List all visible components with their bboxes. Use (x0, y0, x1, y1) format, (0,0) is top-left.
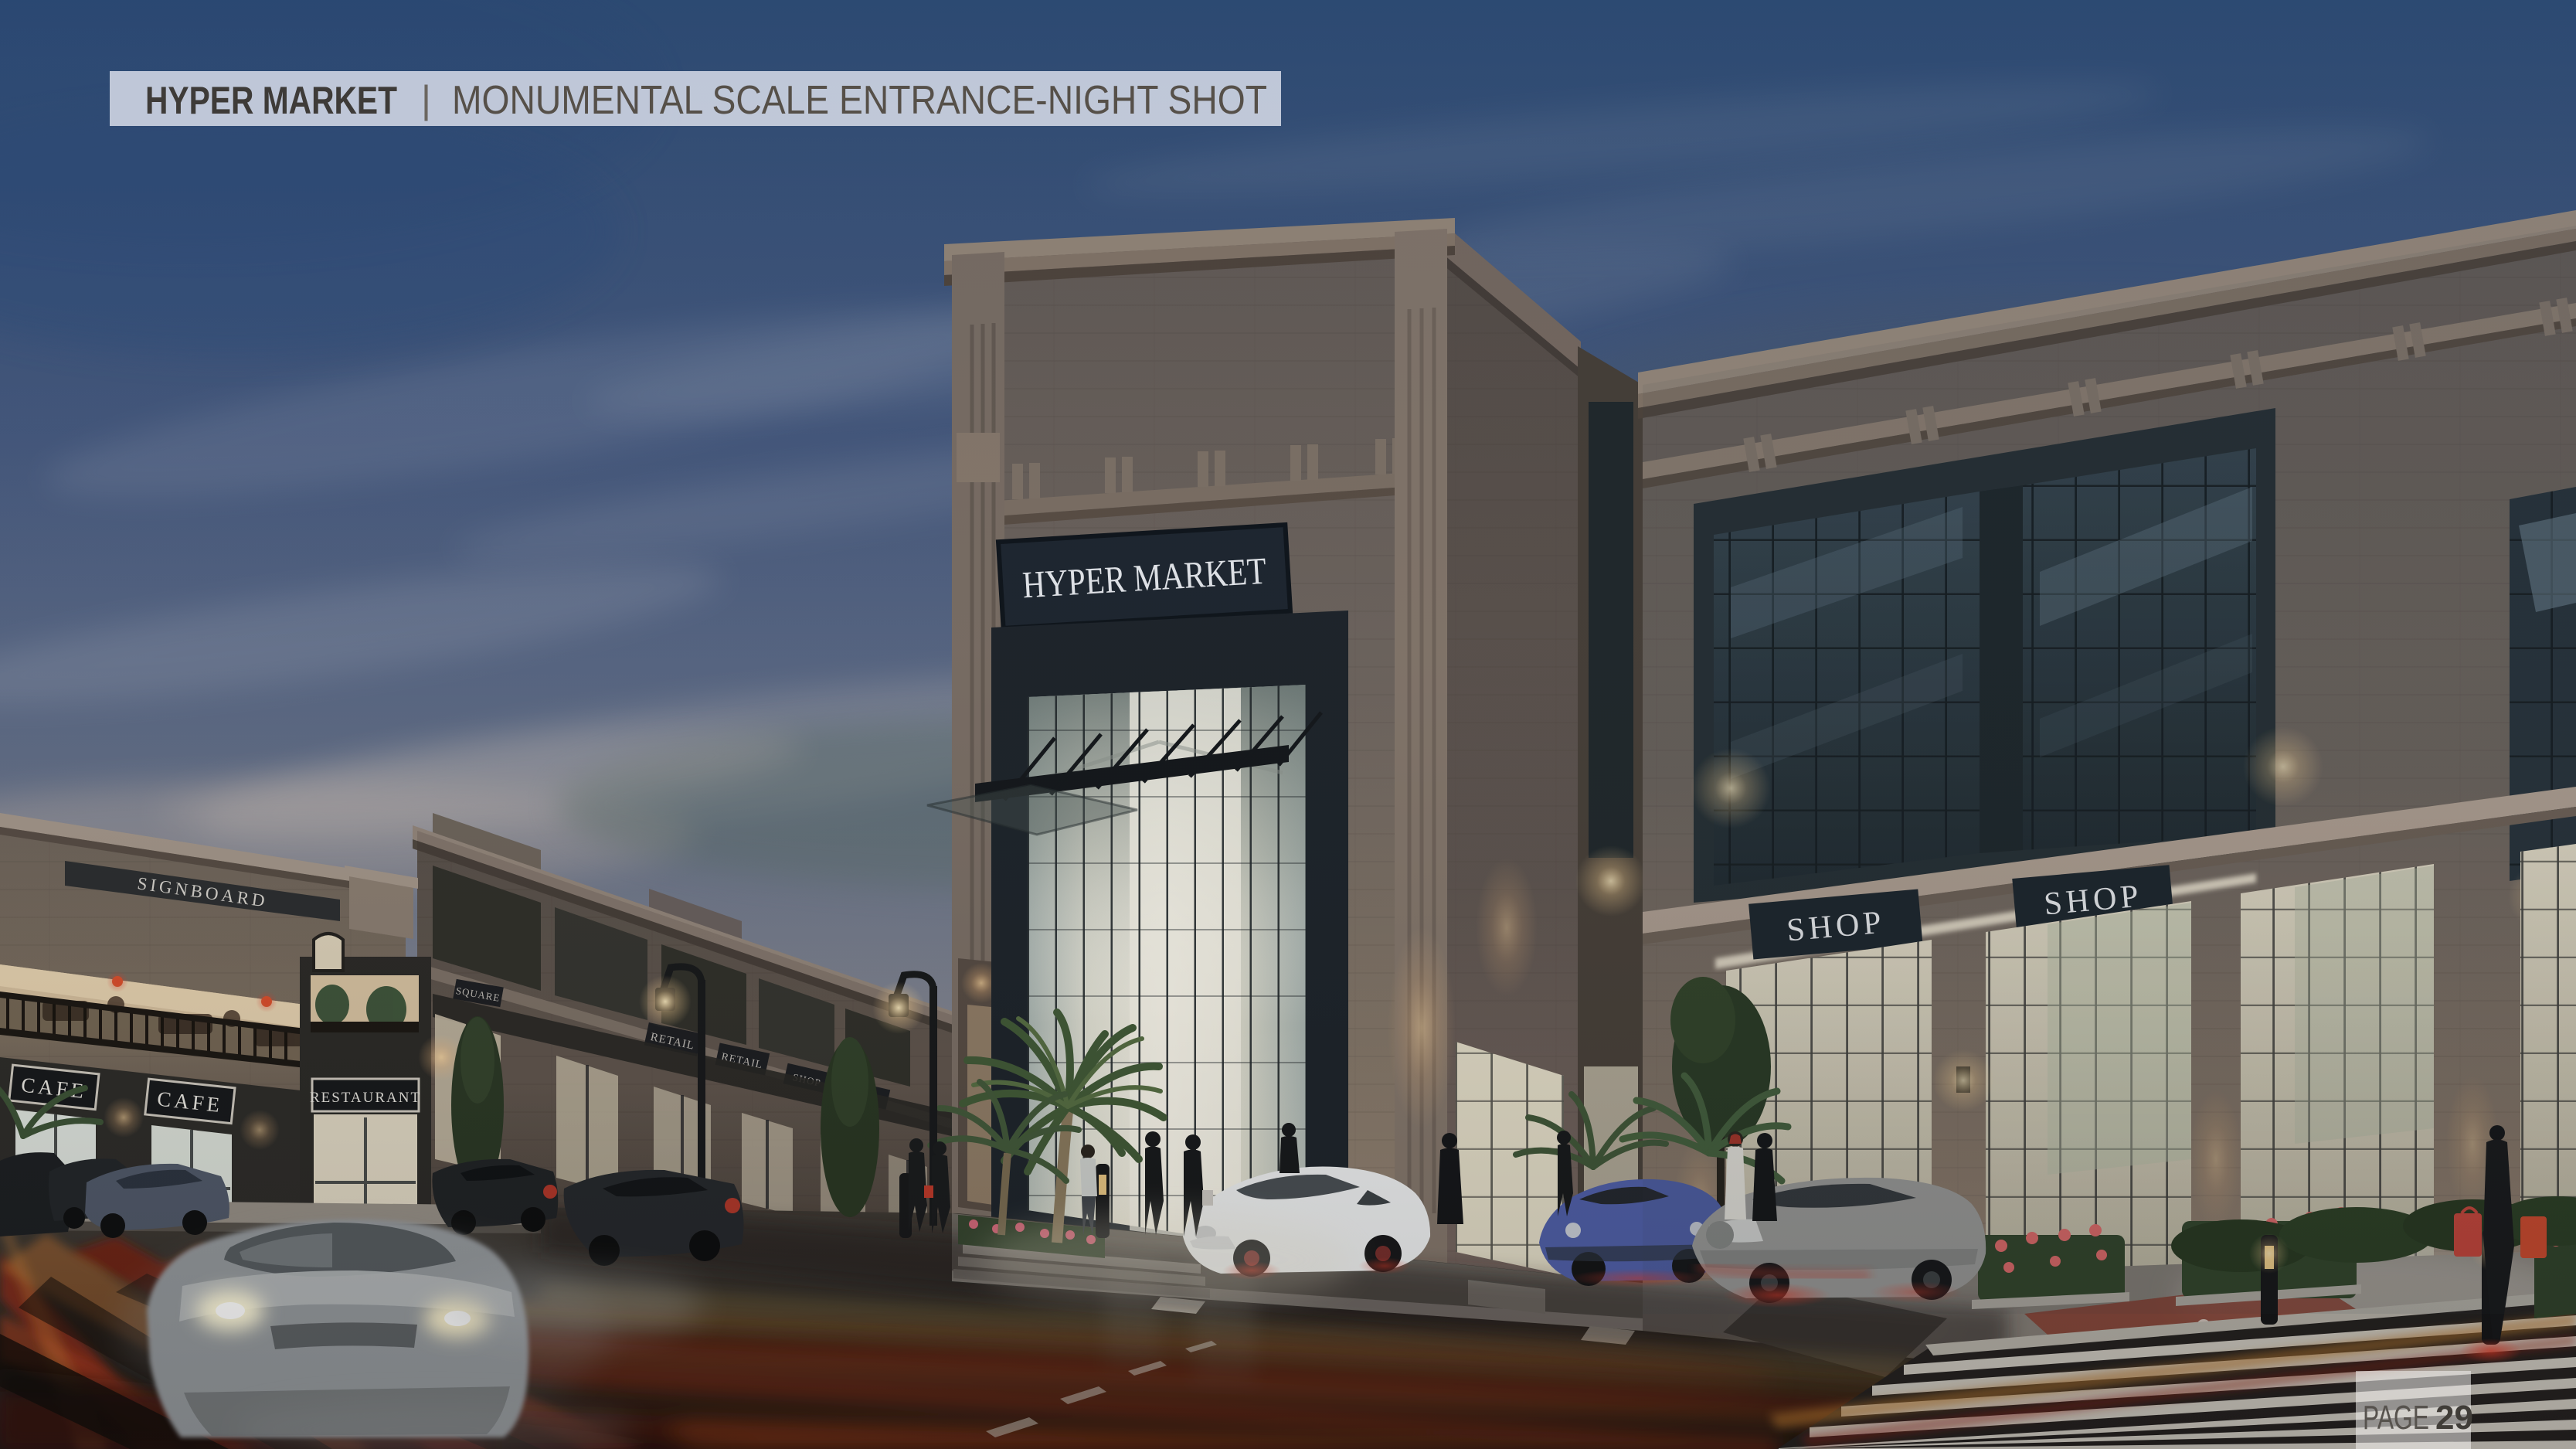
svg-text:PAGE: PAGE (2363, 1399, 2429, 1437)
svg-text:MONUMENTAL SCALE ENTRANCE-NIGH: MONUMENTAL SCALE ENTRANCE-NIGHT SHOT (452, 78, 1267, 123)
svg-text:29: 29 (2435, 1399, 2473, 1437)
svg-text:|: | (421, 78, 431, 121)
svg-text:HYPER MARKET: HYPER MARKET (145, 79, 397, 122)
